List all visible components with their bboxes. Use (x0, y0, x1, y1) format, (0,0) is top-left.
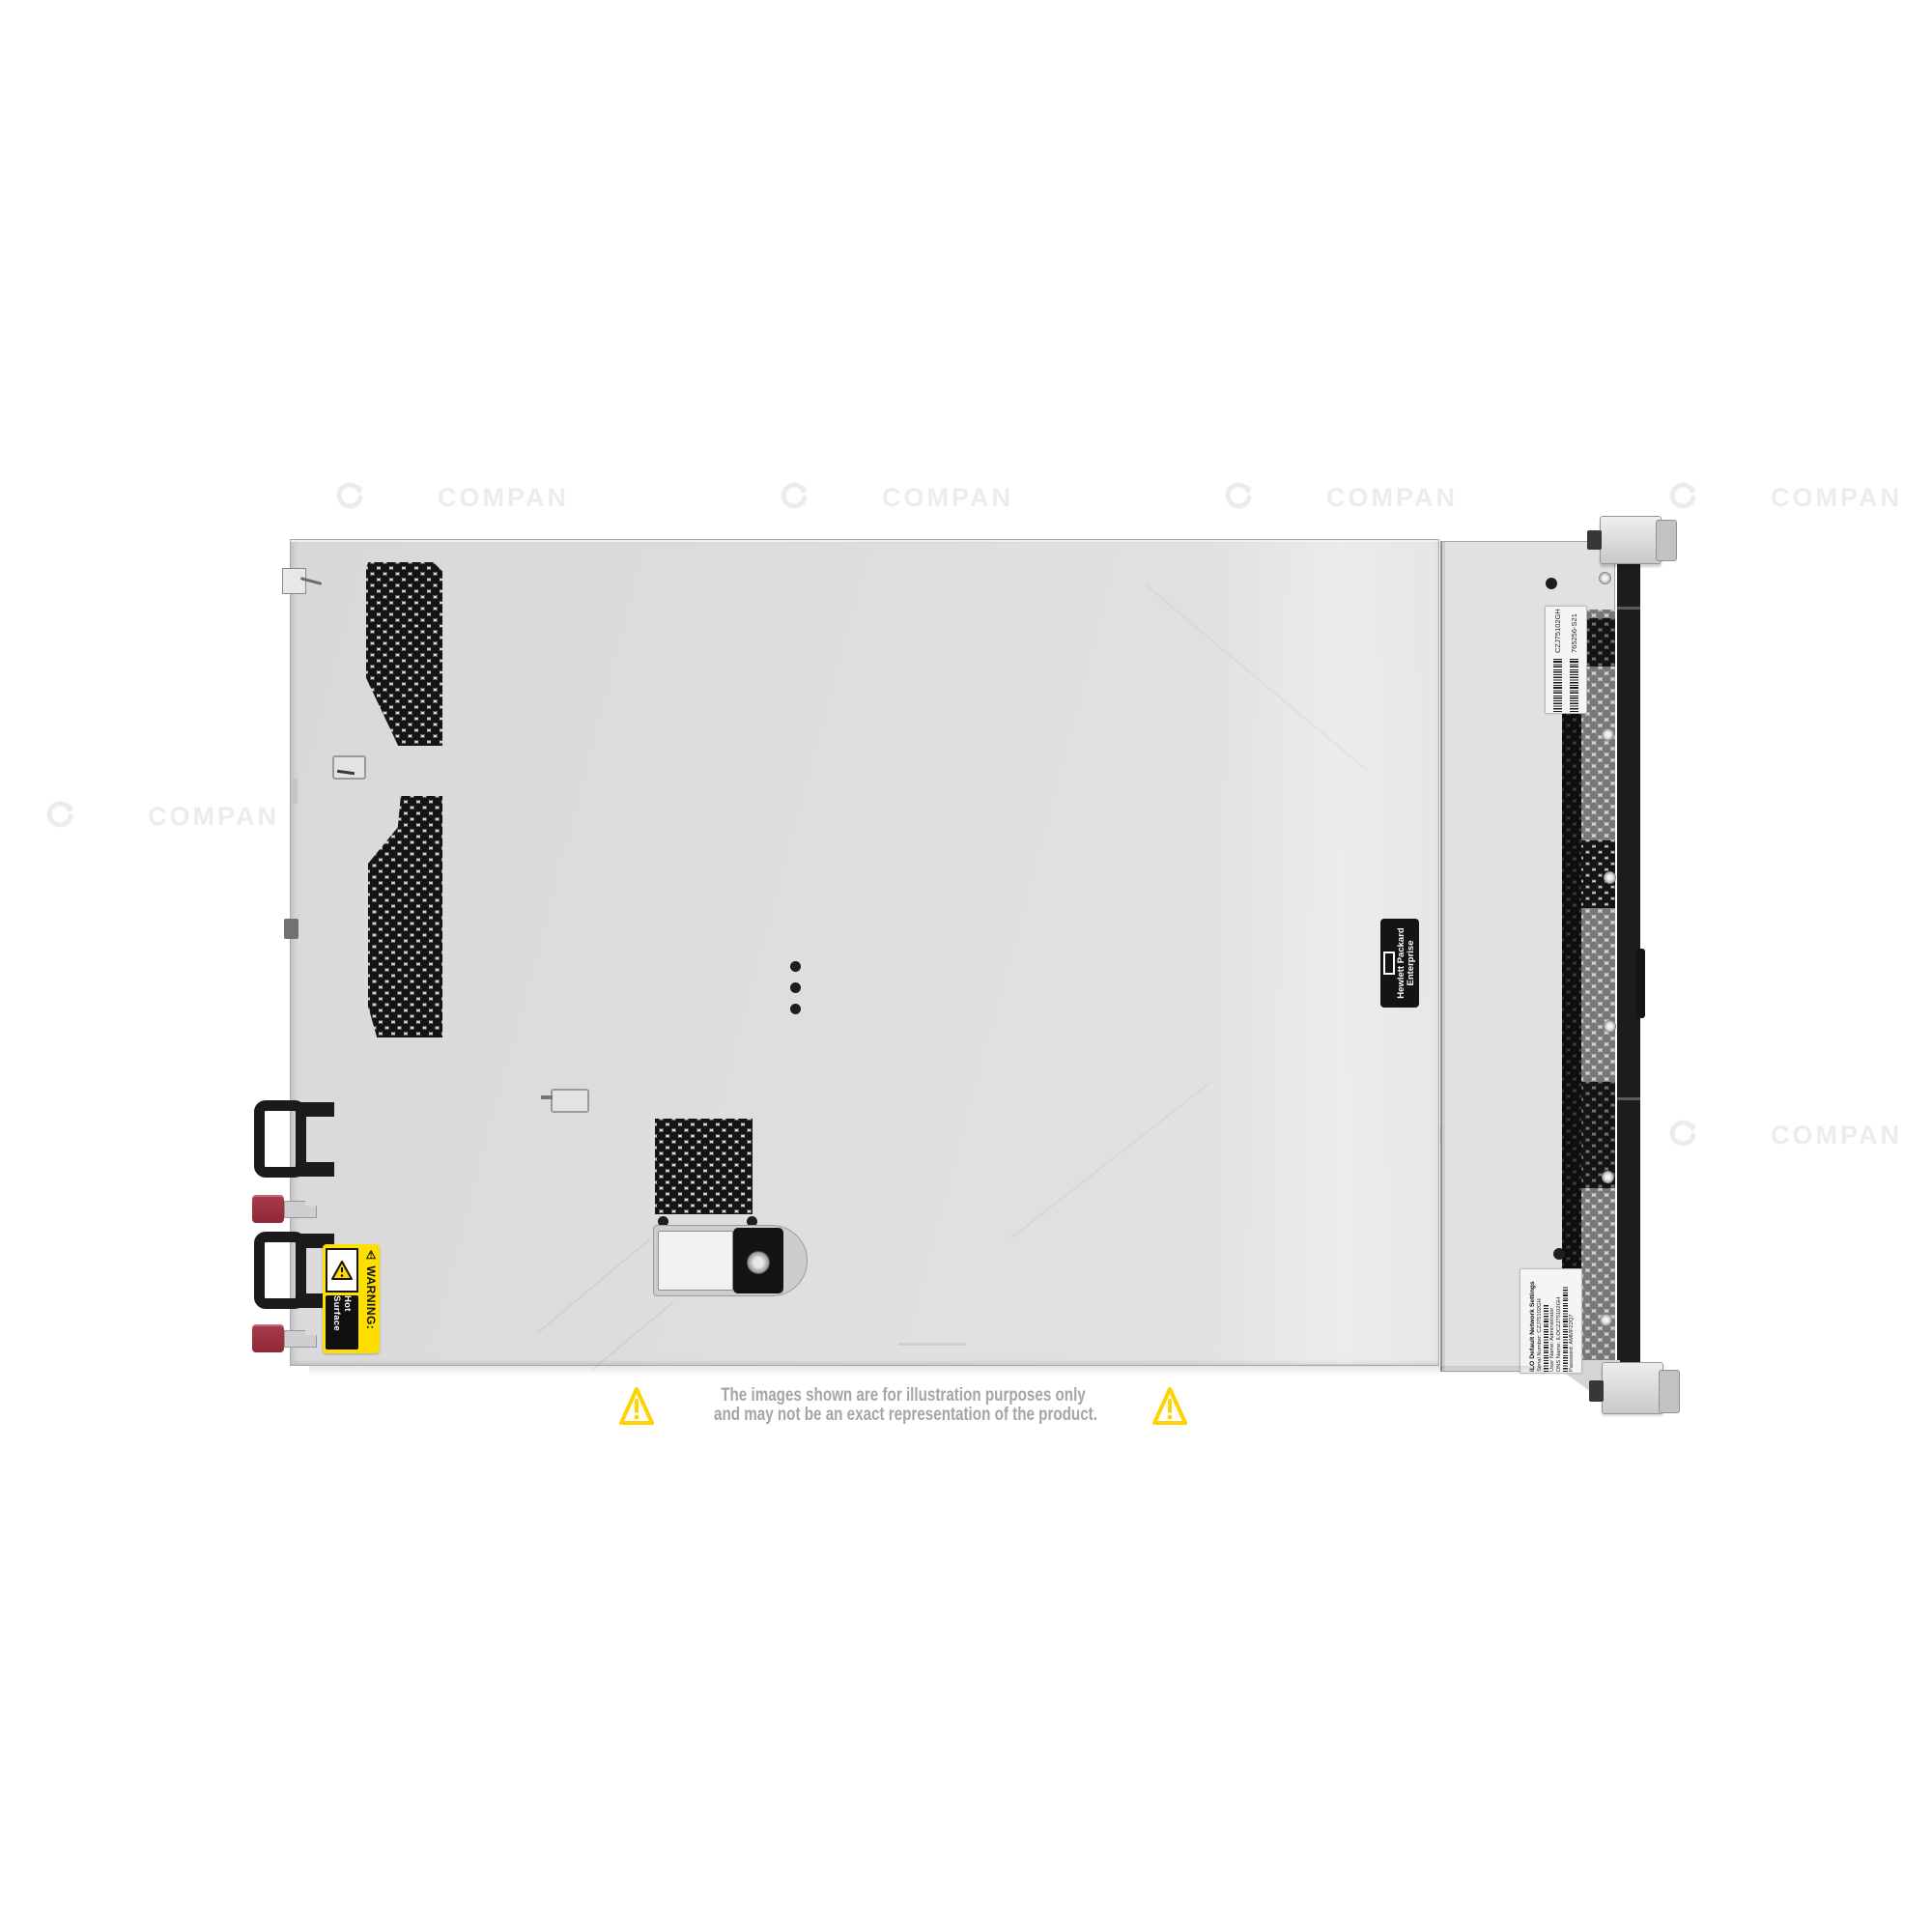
front-panel-grille-dark (1562, 610, 1581, 1363)
panel-seam (898, 1343, 966, 1346)
service-serial: CZJ75102GH (1553, 609, 1562, 653)
warning-triangle-icon (618, 1383, 655, 1428)
rear-latch (282, 568, 306, 594)
rack-ear-bottom-cap (1659, 1370, 1680, 1413)
disclaimer-line1: The images shown are for illustration pu… (714, 1386, 1093, 1406)
front-bezel-gap (1617, 1097, 1640, 1100)
screw (1602, 728, 1614, 741)
barcode (1570, 658, 1578, 712)
psu-release-latch-red (252, 1324, 284, 1352)
front-panel-grille (1581, 610, 1615, 1363)
screw (1599, 572, 1611, 584)
service-tag-label: CZJ75102GH 765256-S21 (1545, 606, 1587, 714)
rear-pin (292, 779, 298, 804)
rivet-dot (1553, 1248, 1565, 1260)
warning-label-heading: ⚠ WARNING: (364, 1248, 378, 1349)
rack-ear-top-latch (1587, 530, 1602, 550)
disclaimer: The images shown are for illustration pu… (618, 1383, 1188, 1428)
cover-latch-plate (658, 1231, 733, 1291)
chassis-shadow (309, 1366, 1546, 1376)
hpe-logo-rect (1383, 952, 1395, 975)
barcode (1553, 658, 1562, 712)
screw (1602, 1171, 1614, 1183)
cover-dot (790, 1004, 801, 1014)
barcode (1562, 1287, 1567, 1372)
front-bezel-gap (1617, 607, 1640, 610)
rack-ear-bottom-latch (1589, 1380, 1604, 1402)
warning-label-message: Hot Surface (326, 1295, 358, 1350)
warning-triangle-icon (1151, 1383, 1188, 1428)
hpe-brand-label: Hewlett Packard Enterprise (1380, 919, 1419, 1008)
disclaimer-line2: and may not be an exact representation o… (714, 1406, 1093, 1426)
barcode (1543, 1304, 1548, 1372)
ilo-title: iLO Default Network Settings (1528, 1271, 1535, 1372)
front-bezel-latch-nub (1636, 949, 1645, 1018)
rack-ear-top (1600, 516, 1662, 564)
warning-triangle-icon (330, 1260, 354, 1281)
ilo-settings-label: iLO Default Network Settings Serial Numb… (1520, 1268, 1582, 1374)
psu-handle (254, 1232, 306, 1309)
ilo-password: Password: AMMF22Q7 (1568, 1271, 1574, 1372)
rear-clip (284, 919, 298, 939)
psu-release-latch-red (252, 1195, 284, 1223)
server-top-view: Hewlett Packard Enterprise CZJ75102GH 76… (0, 0, 1932, 1932)
cover-dot (790, 961, 801, 972)
screw (1604, 871, 1616, 884)
rack-ear-top-cap (1656, 520, 1677, 561)
product-photo-canvas: COMPANCOMPANCOMPANCOMPANCOMPANCOMPANCOMP… (0, 0, 1932, 1932)
cover-latch-screw (747, 1251, 770, 1274)
vent-grille-small (655, 1119, 753, 1214)
warning-label-triangle-box (326, 1248, 358, 1293)
service-part-number: 765256-S21 (1570, 613, 1578, 653)
ilo-dns: DNS Name: ILOCZJ75102GH (1555, 1271, 1561, 1372)
cover-dot (790, 982, 801, 993)
rack-ear-bottom (1602, 1362, 1663, 1414)
cover-tab-mark (541, 1095, 553, 1099)
warning-label: ⚠ WARNING: Hot Surface (323, 1244, 380, 1353)
rivet-dot (1546, 578, 1557, 589)
cover-tab (551, 1089, 589, 1113)
screw (1604, 1020, 1616, 1033)
cover-tab (332, 755, 366, 780)
ilo-user: User Name: Administrator (1548, 1271, 1554, 1372)
screw (1600, 1314, 1612, 1326)
disclaimer-text: The images shown are for illustration pu… (714, 1386, 1093, 1426)
hpe-brand-line2: Enterprise (1406, 941, 1416, 986)
ilo-serial: Serial Number: CZJ75102GH (1536, 1271, 1542, 1372)
psu-handle (254, 1100, 306, 1178)
